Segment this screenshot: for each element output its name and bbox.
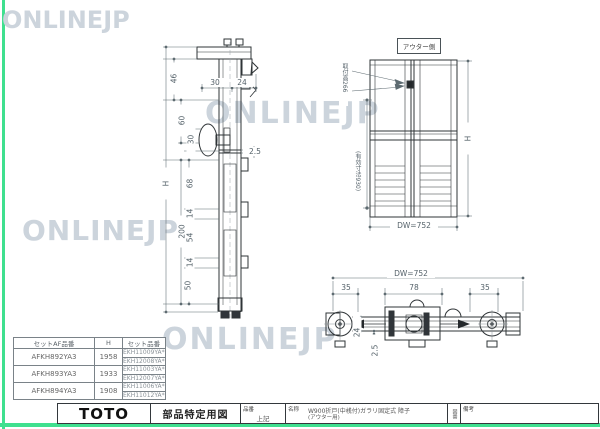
remarks-cell: 備考	[461, 404, 598, 423]
header-set-no: セット品番	[123, 338, 166, 349]
table-row: AFKH893YA3 1933 EKH11003YA*	[14, 366, 166, 375]
height-value: 1908	[95, 383, 123, 400]
plan-24-dim: 24	[353, 317, 362, 349]
height-value: 1958	[95, 349, 123, 366]
view-label-box: アウター側	[397, 38, 441, 54]
header-h: H	[95, 338, 123, 349]
dim-24-top: 24	[231, 78, 253, 87]
table-row: AFKH892YA3 1958 EKH11009YA*	[14, 349, 166, 358]
elevation-drawing	[370, 60, 457, 217]
title-block: TOTO 部品特定用図 品番 上記 名称 W900折戸(中桟付)ガラリ固定式 障…	[57, 403, 599, 424]
part-no-cell: 品番 上記	[241, 404, 286, 423]
set-part-number: EKH12007YA*	[123, 374, 166, 383]
drawing-no-cell: 図番	[448, 404, 461, 423]
dim-60: 60	[178, 105, 187, 137]
name-label: 名称	[288, 405, 299, 413]
dim-2-5: 2.5	[243, 147, 267, 156]
name-cell: 名称 W900折戸(中桟付)ガラリ固定式 障子 (アウター用)	[286, 404, 448, 423]
pivot-left	[324, 310, 354, 347]
center-latch-mechanism	[385, 300, 440, 347]
product-name: W900折戸(中桟付)ガラリ固定式 障子	[308, 408, 410, 415]
drawing-no-label: 図番	[452, 409, 457, 419]
set-part-number: EKH11006YA*	[123, 383, 166, 392]
table-row: AFKH894YA3 1908 EKH11006YA*	[14, 383, 166, 392]
table-header-row: セットAF品番 H セット品番	[14, 338, 166, 349]
plan-35-left-dim: 35	[335, 283, 357, 292]
header-set-af-no: セットAF品番	[14, 338, 95, 349]
product-name-sub: (アウター用)	[308, 415, 410, 422]
plan-35-right-dim: 35	[474, 283, 496, 292]
effective-size-note: (有効寸法930)	[353, 134, 361, 208]
roller-bump	[445, 309, 461, 317]
dim-30: 30	[187, 124, 196, 156]
dim-H: H	[162, 168, 171, 200]
af-part-number: AFKH893YA3	[14, 366, 95, 383]
parts-table: セットAF品番 H セット品番 AFKH892YA3 1958 EKH11009…	[13, 337, 166, 400]
pivot-right	[478, 310, 520, 347]
set-part-number: EKH11003YA*	[123, 366, 166, 375]
latch-marker	[407, 81, 413, 88]
view-label: アウター側	[403, 41, 436, 51]
toto-logo: TOTO	[58, 404, 151, 423]
handle-height-note: 取付高266	[340, 50, 348, 106]
drawing-sheet: ONLINEJP ONLINEJP ONLINEJP ONLINEJP	[0, 0, 600, 429]
dim-30-top: 30	[204, 78, 226, 87]
set-part-number: EKH11009YA*	[123, 349, 166, 358]
dim-68: 68	[186, 168, 195, 200]
louver-slats	[375, 166, 451, 201]
dim-46: 46	[170, 63, 179, 95]
plan-width-dim: DW=752	[387, 269, 435, 278]
part-no-value: 上記	[241, 413, 285, 423]
doc-type: 部品特定用図	[151, 404, 241, 423]
remarks-label: 備考	[463, 405, 474, 413]
elevation-height-dim: H	[464, 123, 473, 155]
part-no-label: 品番	[243, 405, 254, 413]
plan-78-dim: 78	[403, 283, 425, 292]
height-value: 1933	[95, 366, 123, 383]
elevation-width-dim: DW=752	[390, 221, 438, 230]
set-part-number: EKH11012YA*	[123, 391, 166, 400]
af-part-number: AFKH892YA3	[14, 349, 95, 366]
af-part-number: AFKH894YA3	[14, 383, 95, 400]
dim-50: 50	[184, 270, 193, 302]
set-part-number: EKH12008YA*	[123, 357, 166, 366]
plan-2-5-dim: 2.5	[371, 335, 380, 367]
